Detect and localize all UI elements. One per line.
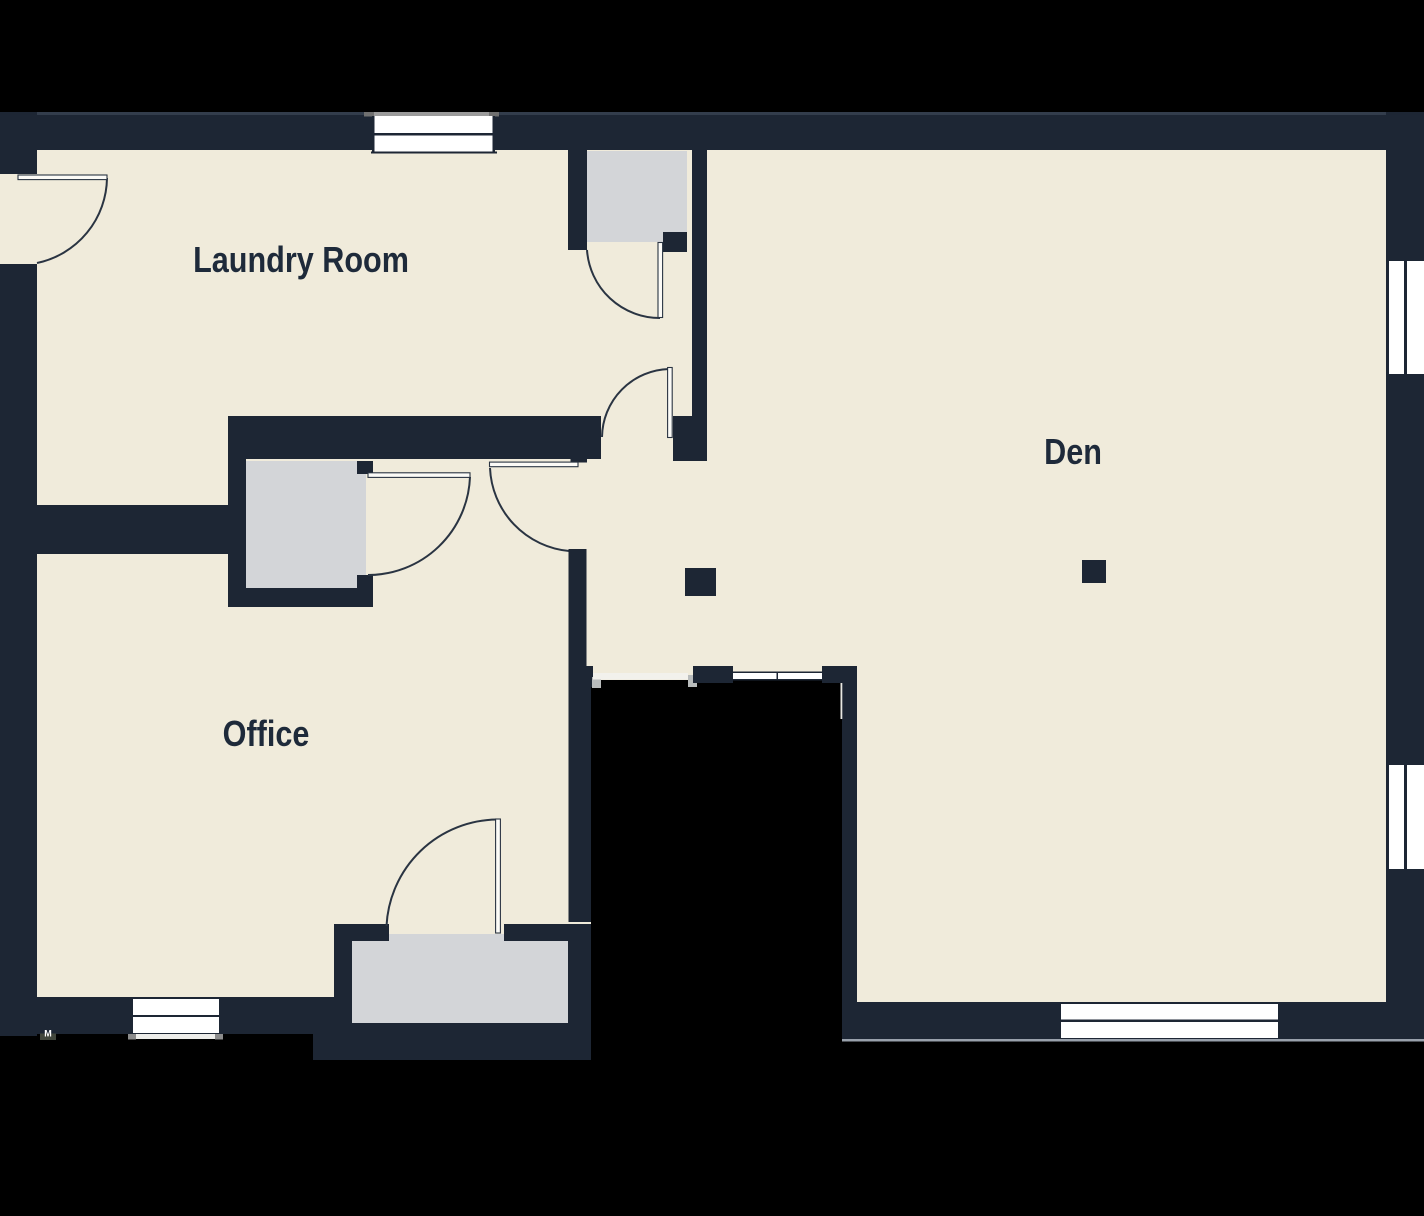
svg-text:Laundry Room: Laundry Room <box>193 241 409 281</box>
svg-text:Den: Den <box>1044 433 1102 473</box>
svg-text:Office: Office <box>223 715 310 755</box>
svg-text:M: M <box>44 1029 52 1039</box>
